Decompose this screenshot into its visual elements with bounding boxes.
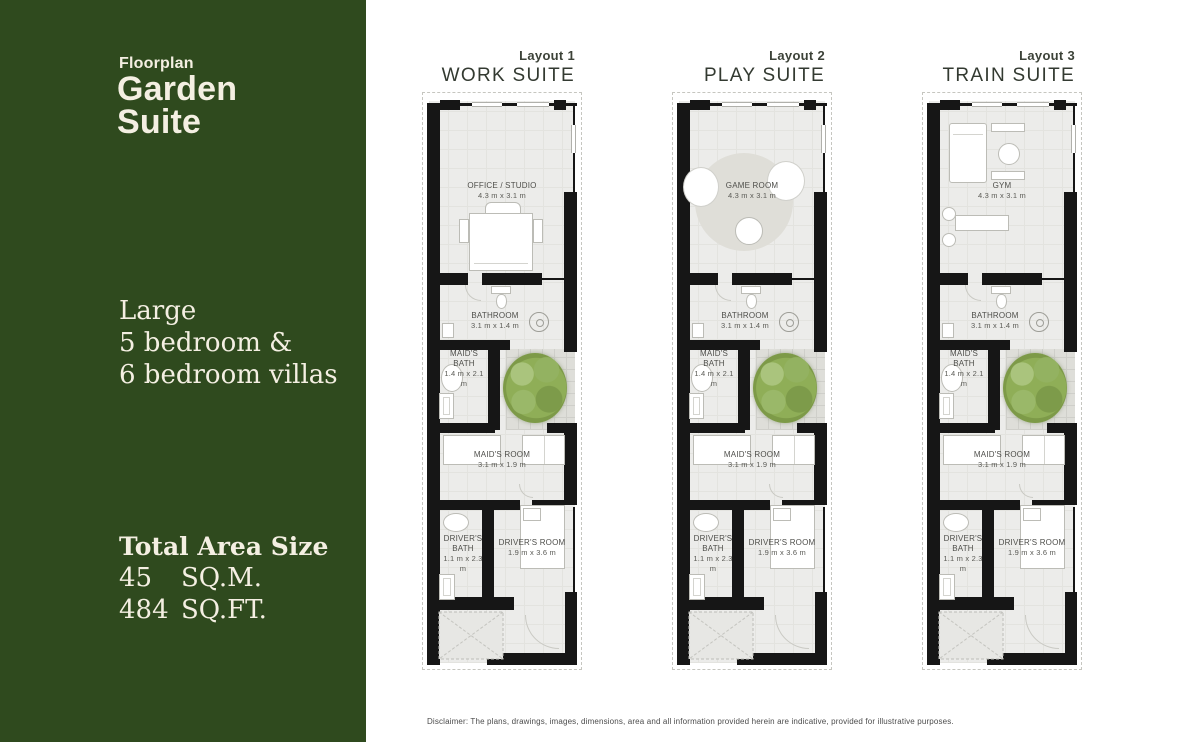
drivers-bath-toilet [693, 513, 719, 532]
layout-label: Layout 1 [442, 48, 575, 63]
area-sqft-row: 484 SQ.FT. [119, 595, 328, 625]
window [767, 102, 799, 107]
room-name: DRIVER'S ROOM [993, 538, 1071, 548]
wall [1042, 278, 1066, 280]
room-name: DRIVER'S ROOM [493, 538, 571, 548]
floorplan-drawing: OFFICE / STUDIO 4.3 m x 3.1 m BATHROOM 3… [427, 97, 577, 665]
room-dimensions: 1.1 m x 2.3 m [941, 554, 985, 574]
wall [814, 192, 827, 352]
sidebar: Floorplan Garden Suite Large 5 bedroom &… [0, 0, 366, 742]
wall [732, 273, 792, 285]
room-label-maids-bath: MAID'S BATH 1.4 m x 2.1 m [941, 349, 987, 389]
floorplan-drawing: GYM 4.3 m x 3.1 m BATHROOM 3.1 m x 1.4 m… [927, 97, 1077, 665]
maids-bath-sink [439, 393, 454, 419]
floorplan-unit: Layout 2 PLAY SUITE [677, 0, 827, 700]
office-desk [469, 213, 533, 271]
room-dimensions: 3.1 m x 1.9 m [940, 460, 1064, 470]
description-line1: Large [119, 295, 338, 327]
room-label-bathroom: BATHROOM 3.1 m x 1.4 m [440, 311, 550, 331]
wall [940, 273, 968, 285]
drivers-bath-sink [689, 574, 705, 600]
room-dimensions: 1.9 m x 3.6 m [493, 548, 571, 558]
room-name: DRIVER'S ROOM [743, 538, 821, 548]
area-sqft-unit: SQ.FT. [181, 595, 328, 625]
room-dimensions: 3.1 m x 1.4 m [940, 321, 1050, 331]
wall [488, 350, 500, 430]
room-label-main: GAME ROOM 4.3 m x 3.1 m [690, 181, 814, 201]
toilet [491, 286, 511, 294]
wall [690, 500, 770, 510]
wall [690, 100, 710, 110]
suite-name: TRAIN SUITE [942, 65, 1075, 87]
room-label-drivers-bath: DRIVER'S BATH 1.1 m x 2.3 m [441, 534, 485, 574]
garden-tree [503, 353, 567, 423]
wall [440, 423, 495, 433]
room-name: MAID'S BATH [691, 349, 737, 369]
room-name: DRIVER'S BATH [941, 534, 985, 554]
plan-header: Layout 2 PLAY SUITE [704, 48, 825, 87]
area-sqm-unit: SQ.M. [181, 563, 328, 593]
wall [1054, 100, 1066, 110]
villa-description: Large 5 bedroom & 6 bedroom villas [119, 295, 338, 391]
room-name: BATHROOM [690, 311, 800, 321]
total-area-heading: Total Area Size [119, 532, 328, 561]
floorplan-unit: Layout 3 TRAIN SUITE [927, 0, 1077, 700]
room-dimensions: 1.1 m x 2.3 m [441, 554, 485, 574]
wall [440, 100, 460, 110]
room-dimensions: 1.4 m x 2.1 m [441, 369, 487, 389]
layout-label: Layout 2 [704, 48, 825, 63]
room-dimensions: 3.1 m x 1.4 m [440, 321, 550, 331]
room-name: DRIVER'S BATH [691, 534, 735, 554]
bed-pillow [773, 508, 791, 521]
room-dimensions: 4.3 m x 3.1 m [940, 191, 1064, 201]
wall [1064, 430, 1077, 505]
window [972, 102, 1002, 107]
room-name: MAID'S ROOM [690, 450, 814, 460]
window [821, 125, 826, 153]
room-name: MAID'S BATH [441, 349, 487, 369]
room-label-maids-room: MAID'S ROOM 3.1 m x 1.9 m [440, 450, 564, 470]
wall [738, 350, 750, 430]
window [472, 102, 502, 107]
shaft-hatch [438, 611, 504, 660]
garden-tree [1003, 353, 1067, 423]
shaft-hatch [688, 611, 754, 660]
wall [1073, 507, 1075, 592]
suite-name: PLAY SUITE [704, 65, 825, 87]
workout-bench [955, 215, 1009, 231]
floorplan-unit: Layout 1 WORK SUITE [427, 0, 577, 700]
wall [690, 423, 745, 433]
desk-side-unit [459, 219, 469, 243]
wall [564, 430, 577, 505]
drivers-bath-toilet [443, 513, 469, 532]
treadmill [949, 123, 987, 183]
wall [440, 500, 520, 510]
disclaimer-text: Disclaimer: The plans, drawings, images,… [427, 717, 987, 726]
toilet [991, 286, 1011, 294]
plan-header: Layout 1 WORK SUITE [442, 48, 575, 87]
bed-pillow [1023, 508, 1041, 521]
room-dimensions: 4.3 m x 3.1 m [440, 191, 564, 201]
wall [940, 500, 1020, 510]
room-dimensions: 3.1 m x 1.9 m [440, 460, 564, 470]
drivers-bath-sink [439, 574, 455, 600]
room-label-maids-bath: MAID'S BATH 1.4 m x 2.1 m [441, 349, 487, 389]
room-dimensions: 1.9 m x 3.6 m [743, 548, 821, 558]
wall [792, 278, 816, 280]
maids-bath-sink [689, 393, 704, 419]
room-name: BATHROOM [440, 311, 550, 321]
wall [814, 430, 827, 505]
room-dimensions: 3.1 m x 1.9 m [690, 460, 814, 470]
room-name: GYM [940, 181, 1064, 191]
desk-side-unit [533, 219, 543, 243]
room-label-drivers-room: DRIVER'S ROOM 1.9 m x 3.6 m [493, 538, 571, 558]
toilet [741, 286, 761, 294]
wall [554, 100, 566, 110]
page-title-line1: Garden [117, 73, 237, 106]
wall [547, 423, 577, 433]
exercise-ball [998, 143, 1020, 165]
room-label-maids-bath: MAID'S BATH 1.4 m x 2.1 m [691, 349, 737, 389]
room-label-bathroom: BATHROOM 3.1 m x 1.4 m [690, 311, 800, 331]
wall [440, 273, 468, 285]
page-title: Garden Suite [117, 73, 237, 139]
suite-name: WORK SUITE [442, 65, 575, 87]
room-name: OFFICE / STUDIO [440, 181, 564, 191]
weight-machine [991, 123, 1025, 132]
room-label-drivers-room: DRIVER'S ROOM 1.9 m x 3.6 m [743, 538, 821, 558]
wall [940, 100, 960, 110]
page-title-line2: Suite [117, 106, 237, 139]
toilet [746, 294, 757, 309]
area-sqft-value: 484 [119, 595, 181, 625]
room-name: MAID'S ROOM [940, 450, 1064, 460]
room-dimensions: 3.1 m x 1.4 m [690, 321, 800, 331]
window [517, 102, 549, 107]
room-label-main: GYM 4.3 m x 3.1 m [940, 181, 1064, 201]
window [1017, 102, 1049, 107]
wall [804, 100, 816, 110]
area-sqm-value: 45 [119, 563, 181, 593]
wall [564, 192, 577, 352]
wall [542, 278, 566, 280]
room-label-drivers-bath: DRIVER'S BATH 1.1 m x 2.3 m [941, 534, 985, 574]
window [1071, 125, 1076, 153]
wall [1047, 423, 1077, 433]
description-line2: 5 bedroom & [119, 327, 338, 359]
dumbbell [942, 207, 956, 221]
room-dimensions: 1.9 m x 3.6 m [993, 548, 1071, 558]
room-dimensions: 4.3 m x 3.1 m [690, 191, 814, 201]
wall [573, 507, 575, 592]
room-dimensions: 1.4 m x 2.1 m [691, 369, 737, 389]
side-table [735, 217, 763, 245]
room-name: GAME ROOM [690, 181, 814, 191]
room-name: MAID'S ROOM [440, 450, 564, 460]
room-label-bathroom: BATHROOM 3.1 m x 1.4 m [940, 311, 1050, 331]
garden-tree [753, 353, 817, 423]
room-name: BATHROOM [940, 311, 1050, 321]
dumbbell [942, 233, 956, 247]
room-name: MAID'S BATH [941, 349, 987, 369]
wall [690, 273, 718, 285]
floorplan-sheet: Floorplan Garden Suite Large 5 bedroom &… [0, 0, 1200, 742]
toilet [996, 294, 1007, 309]
weight-machine [991, 171, 1025, 180]
total-area-block: Total Area Size 45 SQ.M. 484 SQ.FT. [119, 532, 328, 625]
area-sqm-row: 45 SQ.M. [119, 563, 328, 593]
maids-bath-sink [939, 393, 954, 419]
shaft-hatch [938, 611, 1004, 660]
room-label-maids-room: MAID'S ROOM 3.1 m x 1.9 m [940, 450, 1064, 470]
drivers-bath-sink [939, 574, 955, 600]
room-label-drivers-room: DRIVER'S ROOM 1.9 m x 3.6 m [993, 538, 1071, 558]
room-dimensions: 1.1 m x 2.3 m [691, 554, 735, 574]
layout-label: Layout 3 [942, 48, 1075, 63]
room-label-main: OFFICE / STUDIO 4.3 m x 3.1 m [440, 181, 564, 201]
toilet [496, 294, 507, 309]
window [571, 125, 576, 153]
bed-pillow [523, 508, 541, 521]
wall [823, 507, 825, 592]
room-name: DRIVER'S BATH [441, 534, 485, 554]
drivers-bath-toilet [943, 513, 969, 532]
wall [1064, 192, 1077, 352]
wall [988, 350, 1000, 430]
plan-header: Layout 3 TRAIN SUITE [942, 48, 1075, 87]
wall [940, 423, 995, 433]
room-dimensions: 1.4 m x 2.1 m [941, 369, 987, 389]
window [722, 102, 752, 107]
wall [482, 273, 542, 285]
room-label-maids-room: MAID'S ROOM 3.1 m x 1.9 m [690, 450, 814, 470]
wall [982, 273, 1042, 285]
wall [797, 423, 827, 433]
description-line3: 6 bedroom villas [119, 359, 338, 391]
floorplan-drawing: GAME ROOM 4.3 m x 3.1 m BATHROOM 3.1 m x… [677, 97, 827, 665]
room-label-drivers-bath: DRIVER'S BATH 1.1 m x 2.3 m [691, 534, 735, 574]
